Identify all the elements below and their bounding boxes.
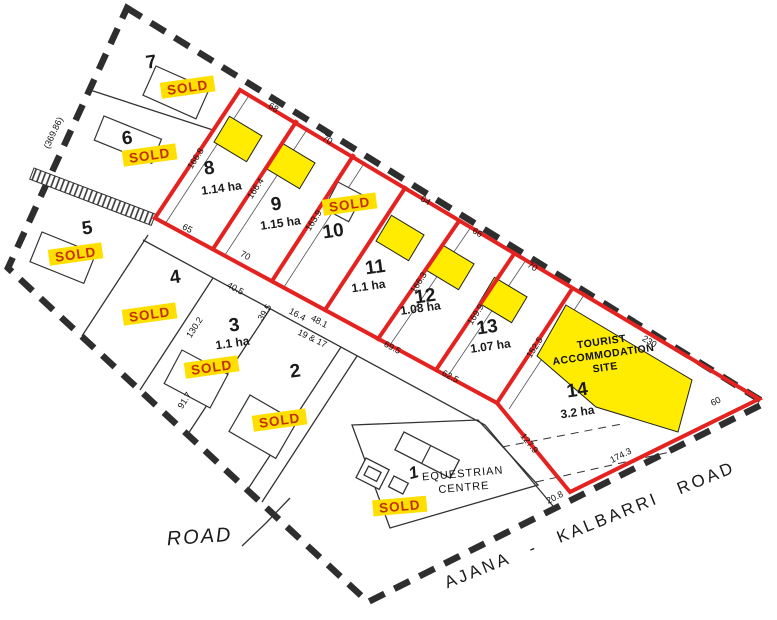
dim-frontage-20-8: 20.8 [545, 489, 565, 506]
lot-number-14: 14 [565, 379, 589, 403]
sold-tag-lot1: SOLD [372, 496, 427, 517]
lot-number-5: 5 [81, 217, 95, 239]
dim-side-9-10: 163.9 [303, 208, 324, 232]
envelope-lot9 [267, 143, 315, 188]
dim-left-boundary: (369.86) [42, 115, 65, 150]
envelope-lot8 [214, 116, 262, 161]
subdivision-plan: 7 6 5 4 3 2 1 8 9 10 11 12 13 14 1.14 ha… [0, 0, 777, 620]
dim-lot3-39-5: 39.5 [256, 302, 274, 322]
dim-corner-60: 60 [709, 395, 722, 408]
dim-bottom-48-1: 48.1 [309, 313, 329, 330]
lot-number-4: 4 [169, 266, 183, 288]
lot-number-3: 3 [228, 314, 241, 336]
dim-road-widths: 19 & 17 [296, 327, 328, 350]
minor-road-label: ROAD [166, 524, 233, 551]
lot-number-7: 7 [145, 51, 158, 73]
dim-bottom-69-5: 69.5 [382, 339, 402, 356]
plan-canvas: 7 6 5 4 3 2 1 8 9 10 11 12 13 14 1.14 ha… [0, 0, 777, 620]
svg-text:SOLD: SOLD [128, 304, 171, 325]
area-lot8: 1.14 ha [200, 178, 243, 198]
envelope-lot12 [426, 244, 474, 289]
area-lot14: 3.2 ha [560, 403, 596, 422]
access-track-hatched-strip [30, 168, 156, 225]
lot-number-2: 2 [289, 360, 302, 382]
svg-text:CENTRE: CENTRE [438, 480, 490, 496]
lot-number-13: 13 [475, 316, 499, 340]
lot-number-10: 10 [321, 220, 345, 244]
minor-road-leader-line [242, 498, 290, 546]
area-lot9: 1.15 ha [259, 213, 302, 233]
area-lot13: 1.07 ha [469, 336, 512, 356]
lot-numbers: 7 6 5 4 3 2 1 8 9 10 11 12 13 14 [81, 51, 590, 483]
area-lot3: 1.1 ha [215, 334, 251, 353]
lot-number-8: 8 [203, 157, 216, 179]
sold-tag-lot4: SOLD [122, 302, 178, 325]
lot-number-11: 11 [364, 256, 387, 280]
dim-lot3-130-2: 130.2 [184, 315, 205, 339]
svg-text:SOLD: SOLD [378, 497, 421, 516]
lot-number-9: 9 [270, 193, 283, 215]
dim-bottom-lot9: 70 [239, 249, 253, 263]
envelope-lot13 [479, 277, 527, 322]
lot-areas: 1.14 ha 1.15 ha 1.1 ha 1.08 ha 1.07 ha 3… [200, 178, 595, 421]
area-lot11: 1.1 ha [351, 277, 387, 296]
lot-number-1: 1 [407, 462, 421, 483]
